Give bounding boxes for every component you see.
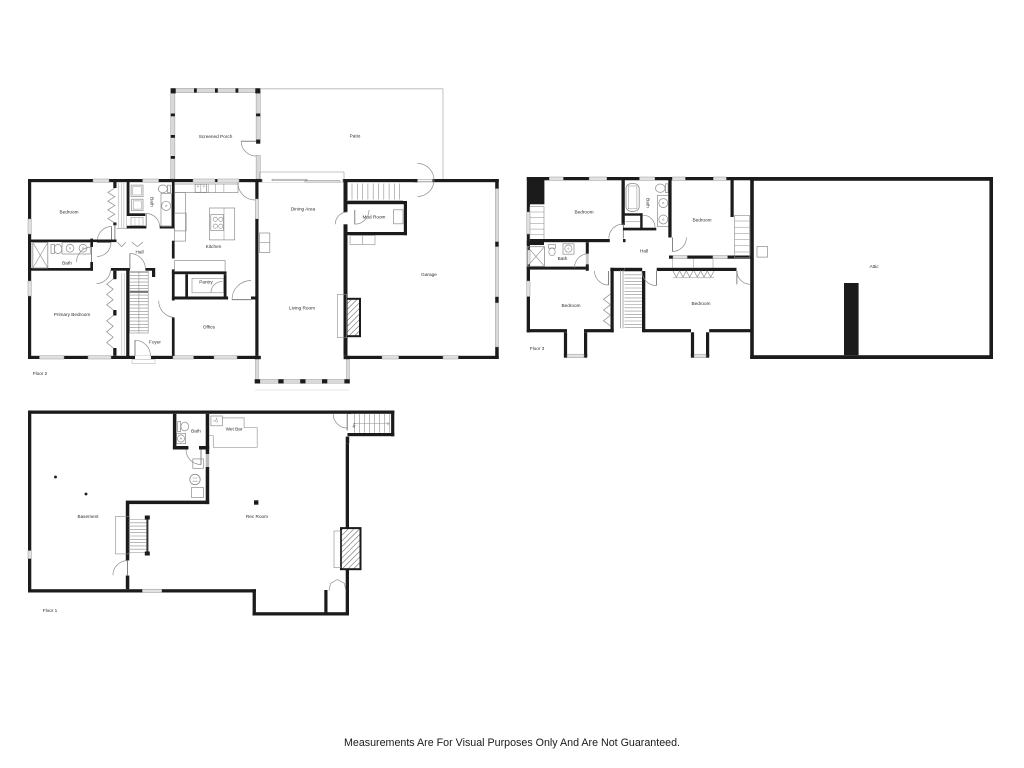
svg-text:Primary Bedroom: Primary Bedroom [54, 312, 91, 317]
svg-text:Floor 3: Floor 3 [530, 346, 545, 351]
svg-text:Bath: Bath [646, 198, 651, 208]
svg-text:Bedroom: Bedroom [59, 210, 78, 215]
svg-text:Bath: Bath [150, 197, 155, 207]
svg-text:Foyer: Foyer [149, 340, 161, 345]
svg-text:Bedroom: Bedroom [692, 218, 711, 223]
svg-text:Screened Porch: Screened Porch [199, 134, 233, 139]
svg-text:Garage: Garage [421, 272, 437, 277]
svg-text:Pantry: Pantry [199, 280, 213, 285]
svg-text:Attic: Attic [869, 264, 879, 269]
svg-text:Office: Office [203, 325, 216, 330]
svg-text:Floor 2: Floor 2 [33, 371, 48, 376]
svg-text:Patio: Patio [350, 134, 361, 139]
svg-text:Hall: Hall [640, 249, 648, 254]
svg-text:Rec Room: Rec Room [246, 514, 268, 519]
svg-text:Wet Bar: Wet Bar [226, 426, 243, 431]
svg-text:Kitchen: Kitchen [206, 244, 222, 249]
svg-text:Mud Room: Mud Room [363, 215, 386, 220]
svg-text:Basement: Basement [77, 514, 99, 519]
svg-text:Bath: Bath [62, 261, 72, 266]
svg-text:Living Room: Living Room [289, 306, 315, 311]
svg-text:Floor 1: Floor 1 [43, 608, 58, 613]
svg-text:Bath: Bath [558, 256, 568, 261]
svg-text:Bedroom: Bedroom [561, 303, 580, 308]
svg-text:Up: Up [352, 423, 356, 428]
svg-text:Dining Area: Dining Area [291, 207, 316, 212]
svg-text:Measurements Are For Visual Pu: Measurements Are For Visual Purposes Onl… [344, 737, 680, 749]
svg-text:Hall: Hall [136, 249, 144, 254]
svg-text:Bedroom: Bedroom [574, 210, 593, 215]
svg-text:Bath: Bath [191, 429, 201, 434]
svg-text:Bedroom: Bedroom [691, 301, 710, 306]
